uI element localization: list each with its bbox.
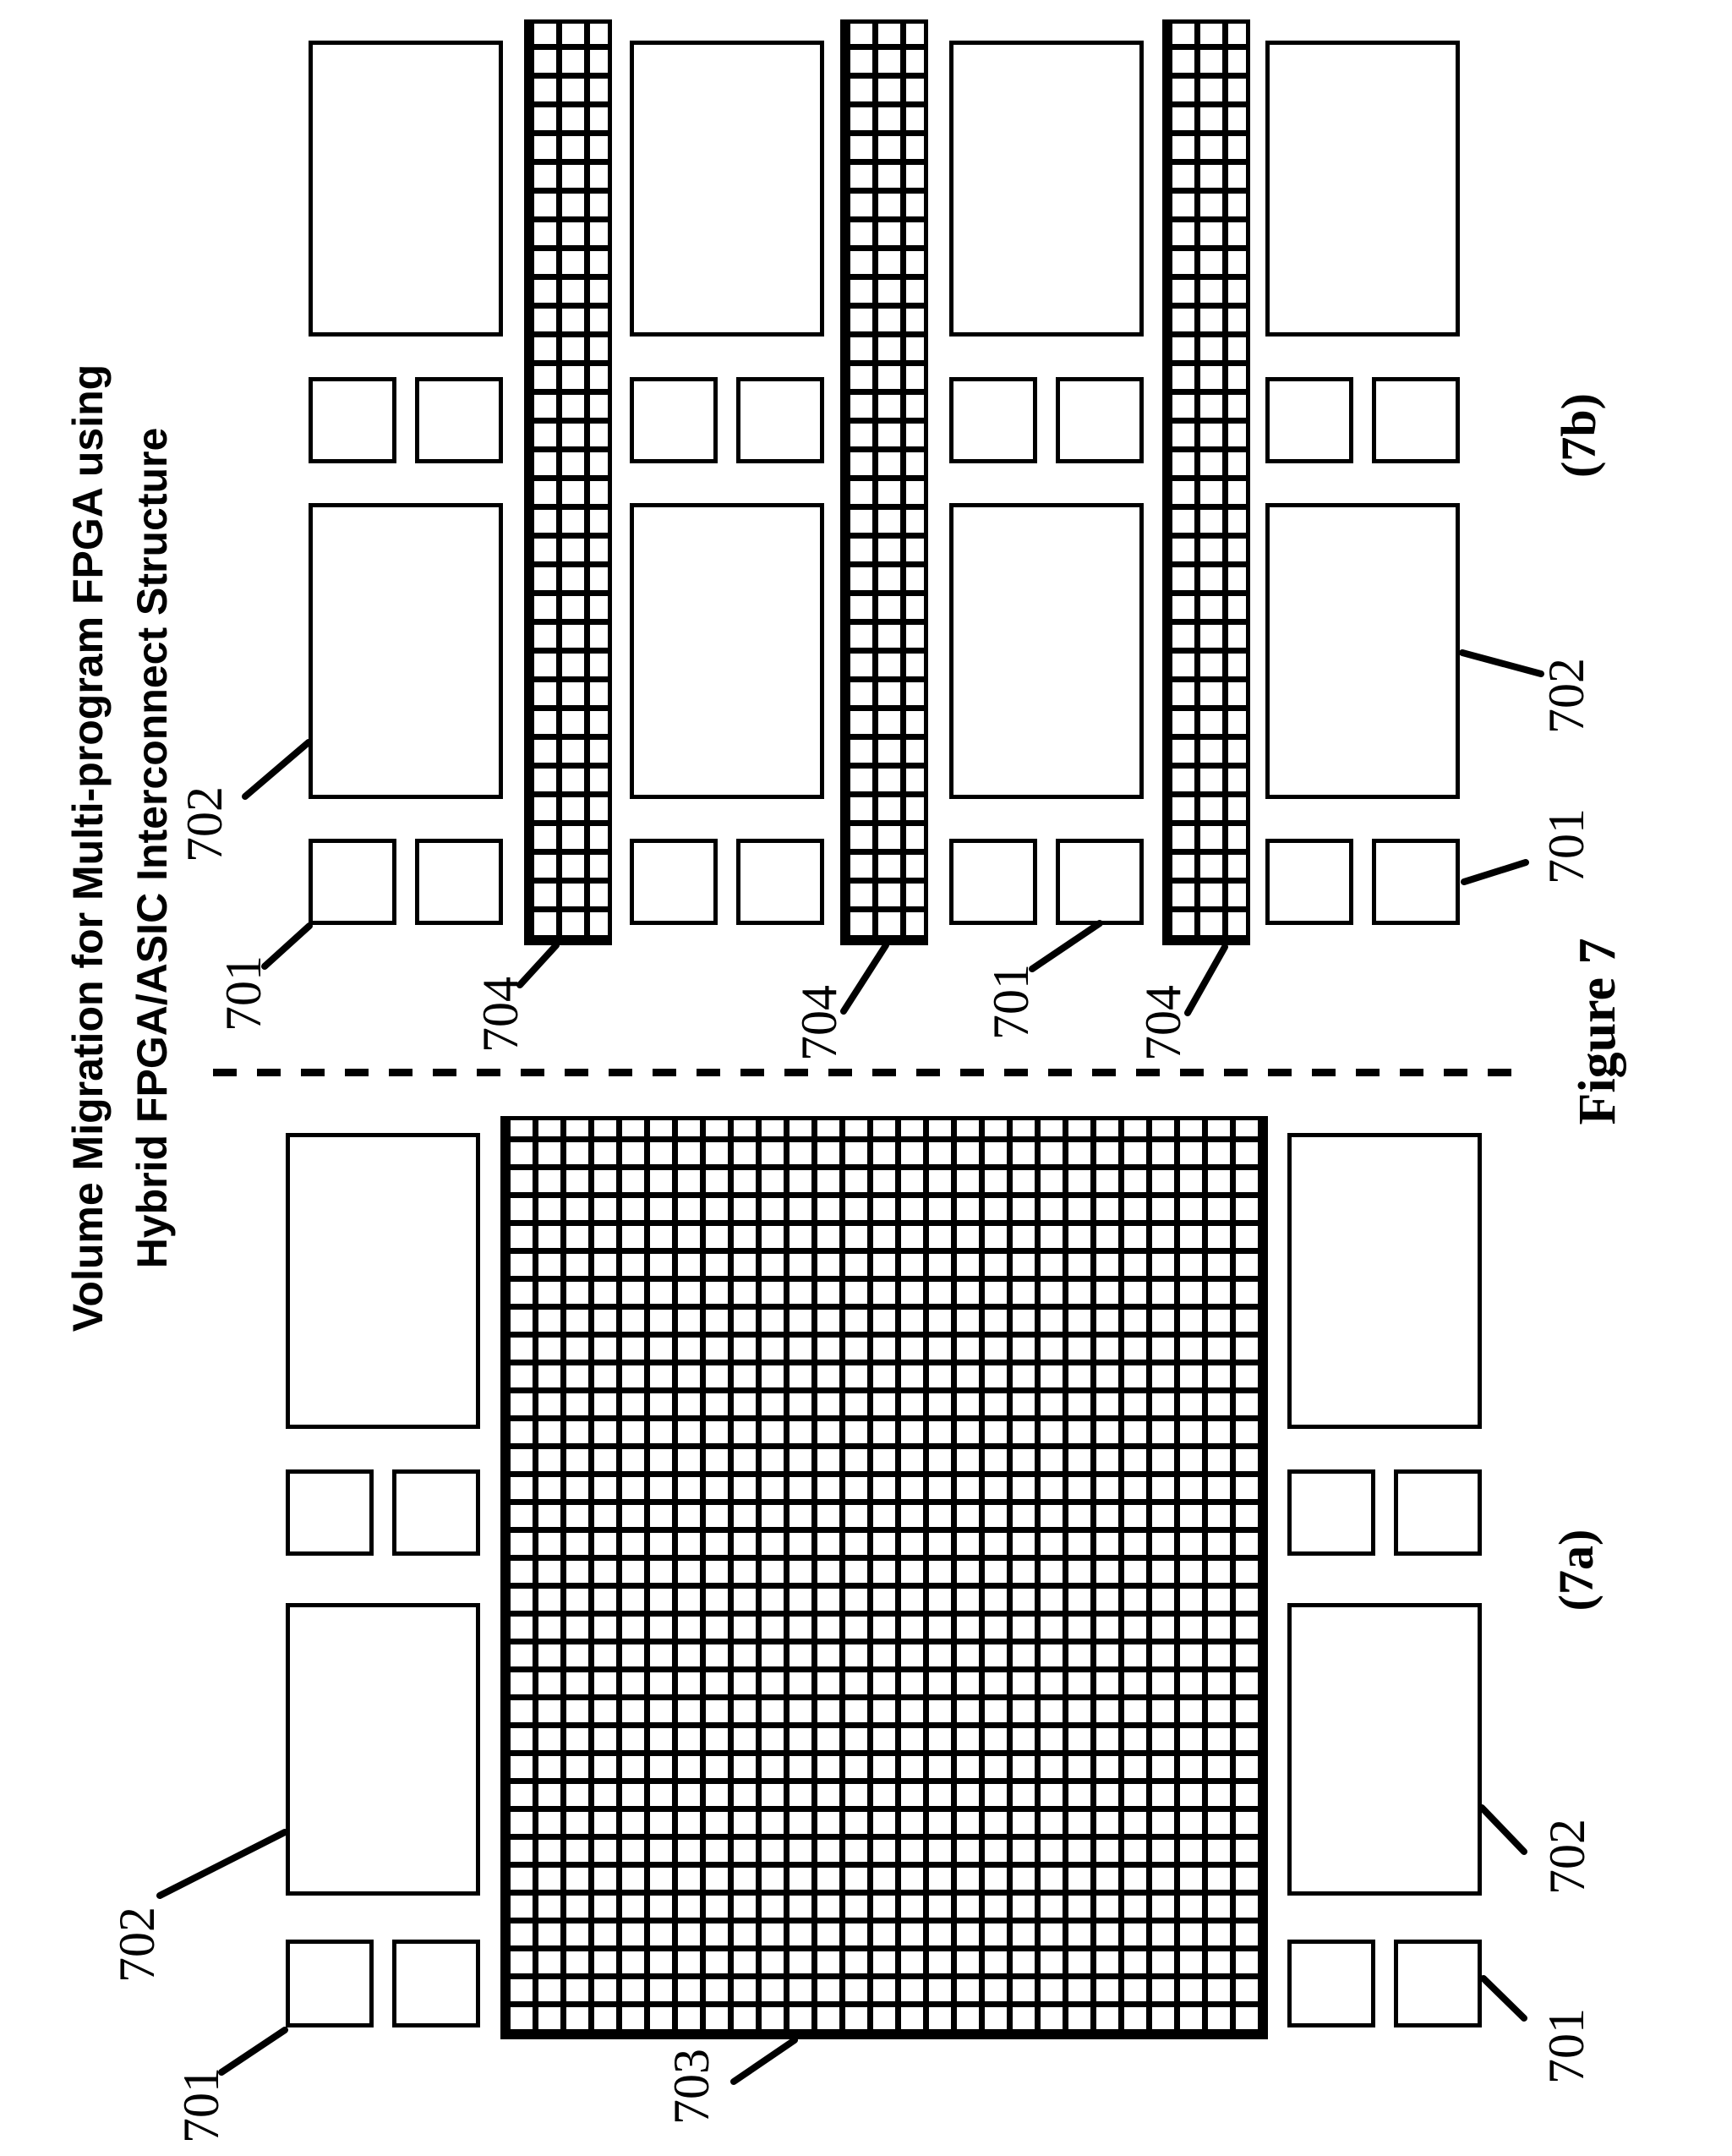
leader-line xyxy=(245,742,309,796)
leader-line xyxy=(1464,862,1526,882)
ref-label-702: 702 xyxy=(179,786,230,862)
figure-title-line2: Hybrid FPGA/ASIC Interconnect Structure xyxy=(120,364,184,1332)
leader-line xyxy=(1482,1808,1524,1852)
leader-line xyxy=(1483,1978,1524,2018)
ref-label-704: 704 xyxy=(794,985,844,1061)
ref-label-702: 702 xyxy=(112,1907,162,1983)
leader-line xyxy=(221,2030,285,2072)
figure-title: Volume Migration for Multi-program FPGA … xyxy=(56,364,184,1332)
panel-a-label: (7a) xyxy=(1552,1529,1601,1612)
ref-label-701: 701 xyxy=(986,964,1036,1040)
ref-label-704: 704 xyxy=(1138,985,1188,1061)
ref-label-702: 702 xyxy=(1541,658,1592,734)
figure-caption: Figure 7 xyxy=(1571,938,1624,1125)
panel-b-label: (7b) xyxy=(1554,393,1604,478)
ref-label-702: 702 xyxy=(1542,1819,1593,1895)
leader-line xyxy=(1188,947,1225,1013)
leader-line xyxy=(1032,923,1100,969)
patent-figure-page: Volume Migration for Multi-program FPGA … xyxy=(0,0,1732,2156)
ref-label-701: 701 xyxy=(1541,808,1592,884)
ref-label-701: 701 xyxy=(176,2067,227,2143)
ref-label-703: 703 xyxy=(666,2049,717,2125)
figure-title-line1: Volume Migration for Multi-program FPGA … xyxy=(56,364,120,1332)
leader-line xyxy=(734,2040,795,2082)
leader-line xyxy=(844,945,886,1011)
leader-line xyxy=(160,1832,285,1896)
ref-label-704: 704 xyxy=(475,977,526,1053)
ref-label-701: 701 xyxy=(218,955,269,1031)
ref-label-701: 701 xyxy=(1541,2008,1592,2084)
leader-line xyxy=(1462,653,1541,674)
leader-lines xyxy=(0,0,1732,2156)
